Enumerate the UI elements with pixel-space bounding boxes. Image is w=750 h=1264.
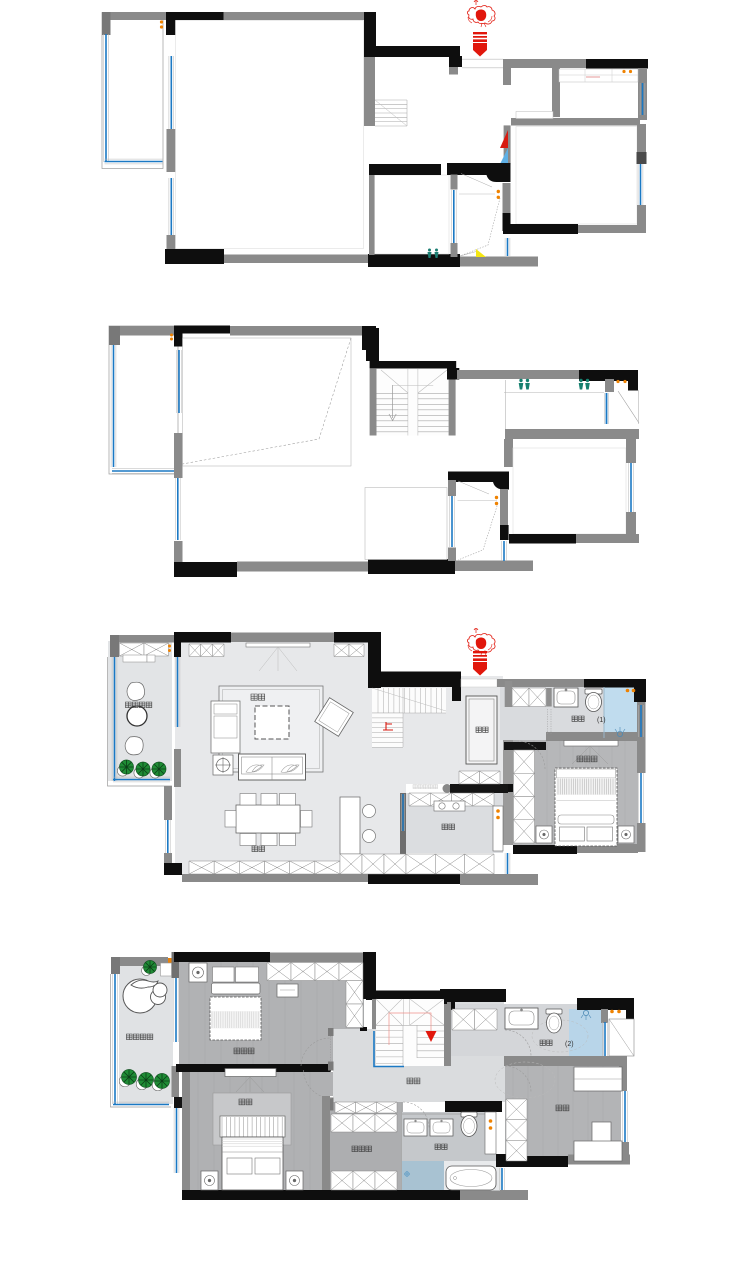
svg-text:(2): (2) xyxy=(565,1041,574,1048)
svg-text:(1): (1) xyxy=(597,717,606,724)
